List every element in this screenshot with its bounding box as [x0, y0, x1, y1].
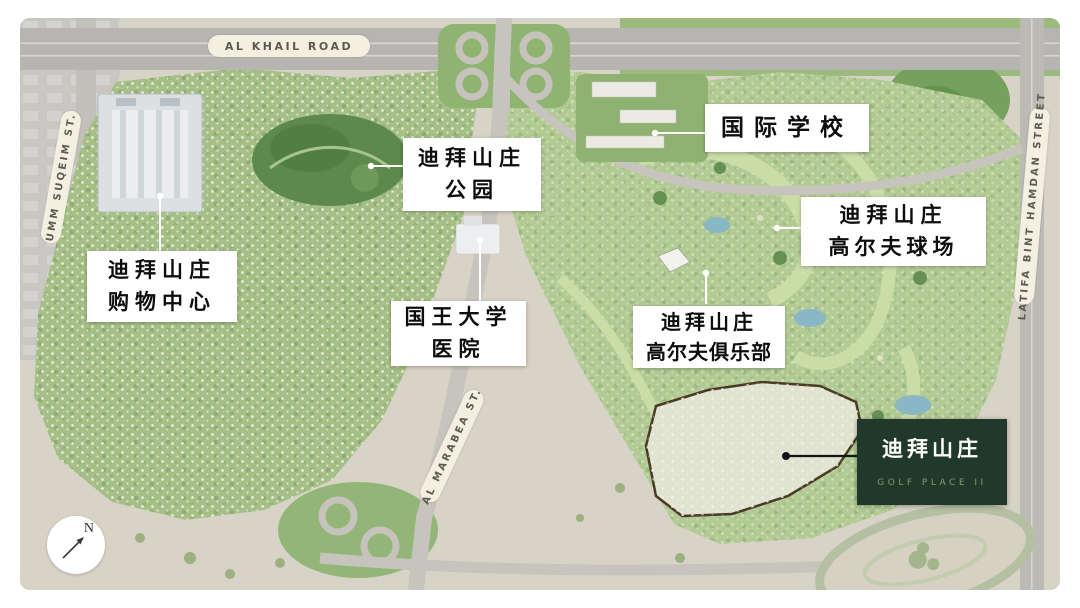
- landmark-label: 迪拜山庄: [108, 255, 216, 287]
- road-label-al-khail: AL KHAIL ROAD: [208, 35, 370, 57]
- compass: N: [47, 516, 105, 574]
- landmark-international-school: 国际学校: [705, 104, 869, 152]
- landmark-dubai-hills-mall: 迪拜山庄 购物中心: [87, 251, 237, 322]
- school-campus: [576, 74, 708, 162]
- north-arrow-icon: [47, 516, 105, 574]
- mall-building: [98, 94, 202, 212]
- landmark-label: 医院: [432, 334, 486, 366]
- landmark-label: 公园: [445, 175, 499, 207]
- landmark-label: 高尔夫俱乐部: [646, 337, 772, 367]
- project-subtitle: GOLF PLACE II: [877, 478, 986, 488]
- landmark-label: 迪拜山庄: [840, 200, 948, 232]
- project-card-golf-place: 迪拜山庄 GOLF PLACE II: [857, 419, 1007, 505]
- landmark-dubai-hills-golf-course: 迪拜山庄 高尔夫球场: [801, 197, 986, 266]
- landmark-label: 高尔夫球场: [829, 232, 959, 264]
- landmark-label: 迪拜山庄: [661, 307, 757, 337]
- landmark-label: 购物中心: [108, 287, 216, 319]
- masterplan-screenshot: AL KHAIL ROAD UMM SUQEIM ST. LATIFA BINT…: [0, 0, 1080, 608]
- landmark-label: 迪拜山庄: [418, 143, 526, 175]
- central-park-dark-green: [252, 114, 408, 206]
- landmark-kings-college-hospital: 国王大学 医院: [391, 301, 526, 366]
- landmark-dubai-hills-golf-club: 迪拜山庄 高尔夫俱乐部: [633, 306, 785, 368]
- landmark-dubai-hills-park: 迪拜山庄 公园: [403, 138, 541, 211]
- landmark-label: 国王大学: [405, 302, 513, 334]
- project-name: 迪拜山庄: [882, 433, 982, 463]
- landmark-label: 国际学校: [721, 111, 853, 146]
